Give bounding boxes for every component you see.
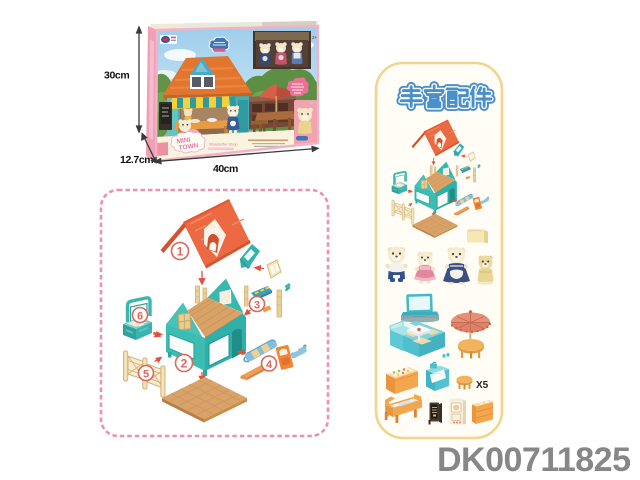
svg-text:3: 3 <box>254 299 260 311</box>
svg-text:2: 2 <box>181 357 188 371</box>
svg-text:X5: X5 <box>476 380 489 391</box>
svg-text:DK00711825: DK00711825 <box>437 441 631 479</box>
svg-text:2+: 2+ <box>312 35 318 40</box>
svg-text:Wonderful Shop: Wonderful Shop <box>209 142 238 147</box>
svg-text:4: 4 <box>266 359 273 371</box>
svg-text:1: 1 <box>177 245 184 259</box>
svg-text:6: 6 <box>137 310 143 322</box>
svg-text:12.7cm: 12.7cm <box>120 154 153 166</box>
svg-text:5: 5 <box>143 368 149 380</box>
svg-text:30cm: 30cm <box>104 70 129 82</box>
svg-text:40cm: 40cm <box>213 163 238 175</box>
